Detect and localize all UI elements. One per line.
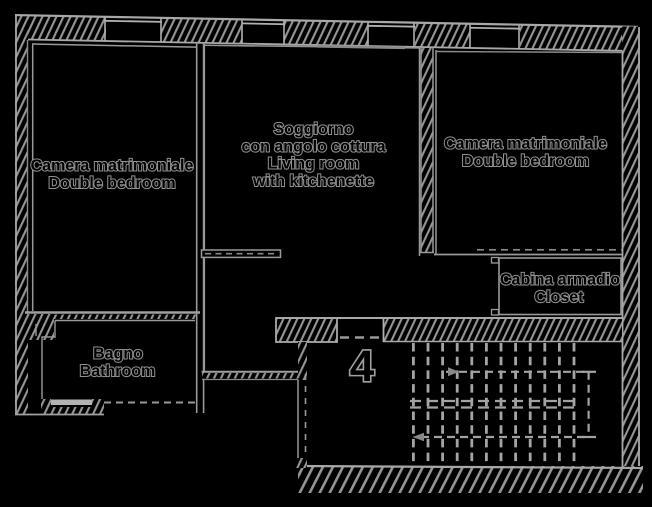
svg-text:with kitchenette: with kitchenette xyxy=(252,173,374,190)
svg-text:con angolo cottura: con angolo cottura xyxy=(242,138,386,155)
svg-text:Bathroom: Bathroom xyxy=(80,363,156,380)
svg-text:4: 4 xyxy=(350,342,375,391)
svg-text:Cabina armadio: Cabina armadio xyxy=(500,272,620,289)
svg-text:Living room: Living room xyxy=(268,156,360,173)
svg-text:Double bedroom: Double bedroom xyxy=(462,153,589,170)
svg-text:Soggiorno: Soggiorno xyxy=(274,121,354,138)
svg-text:Double bedroom: Double bedroom xyxy=(48,175,175,192)
svg-text:Bagno: Bagno xyxy=(93,346,143,363)
svg-text:Camera matrimoniale: Camera matrimoniale xyxy=(31,158,194,175)
svg-text:Closet: Closet xyxy=(535,289,585,306)
svg-text:Camera matrimoniale: Camera matrimoniale xyxy=(444,136,607,153)
